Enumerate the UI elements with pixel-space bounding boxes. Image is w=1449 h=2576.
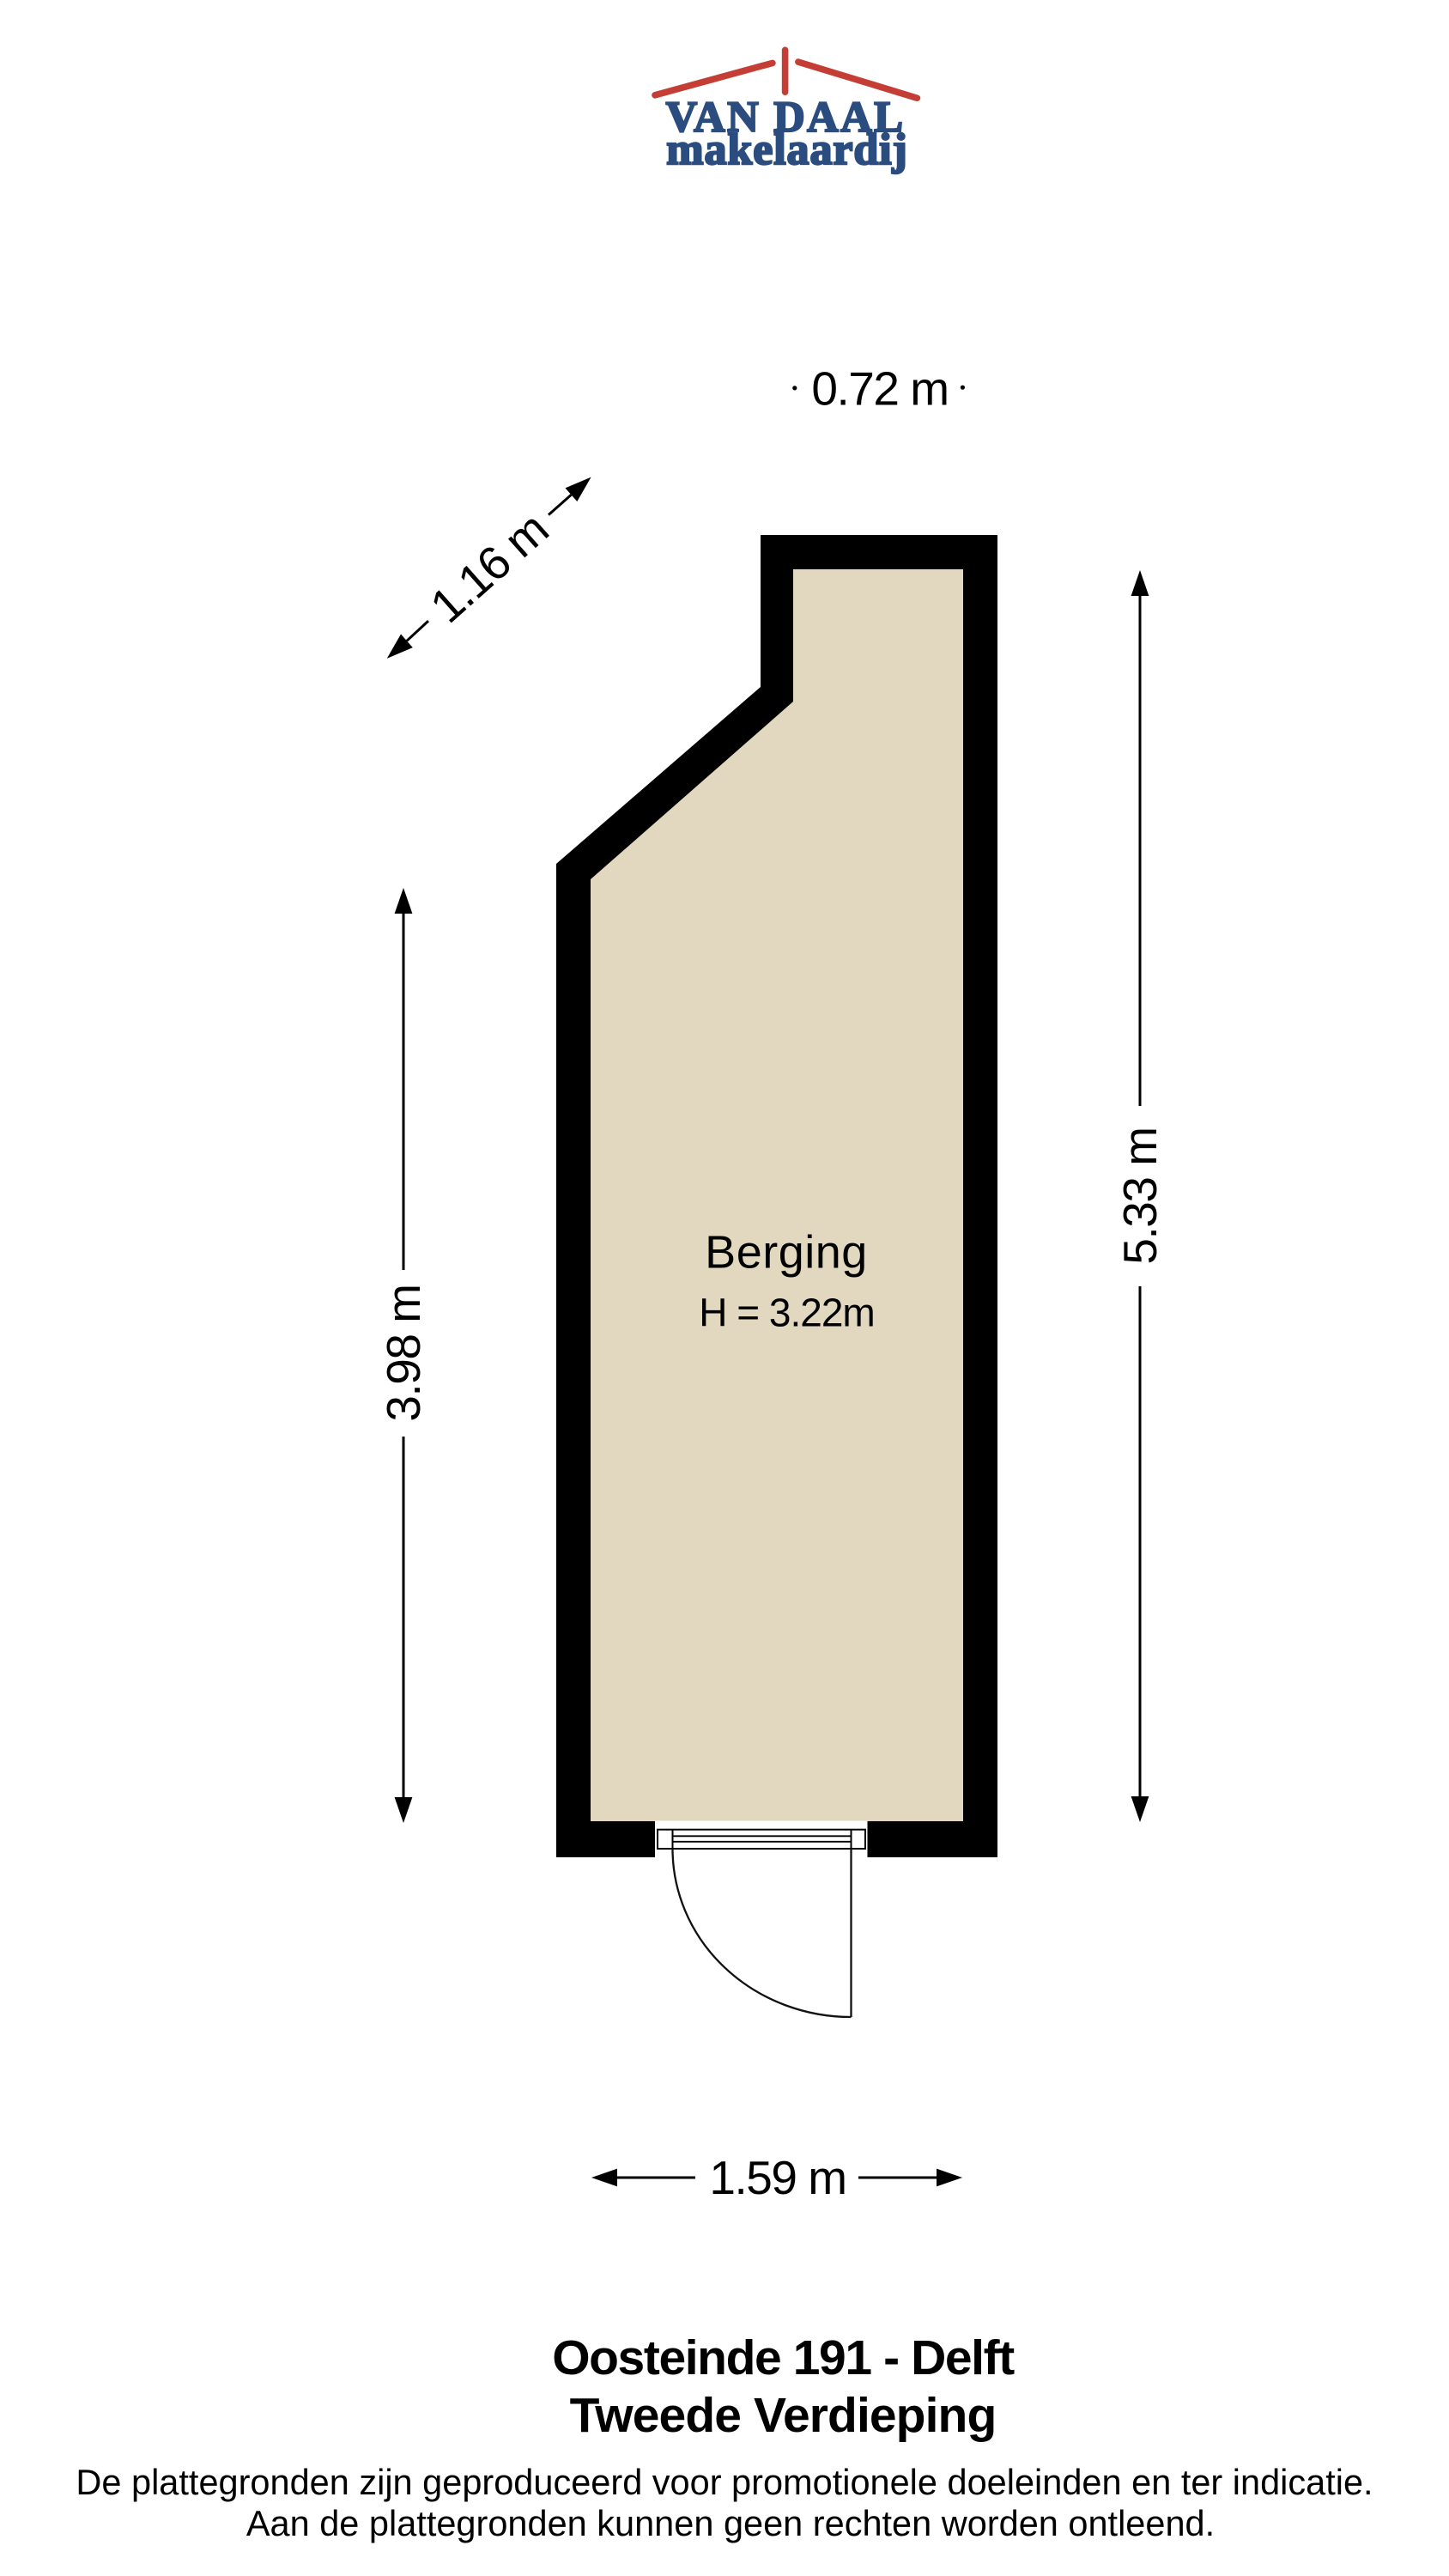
svg-text:1.16 m: 1.16 m [420, 502, 557, 633]
svg-text:3.98 m: 3.98 m [377, 1285, 430, 1421]
svg-text:Berging: Berging [705, 1227, 868, 1279]
svg-text:5.33 m: 5.33 m [1113, 1127, 1167, 1264]
svg-text:1.59 m: 1.59 m [709, 2151, 846, 2204]
svg-text:H = 3.22m: H = 3.22m [699, 1291, 875, 1335]
svg-text:0.72 m: 0.72 m [811, 361, 948, 415]
